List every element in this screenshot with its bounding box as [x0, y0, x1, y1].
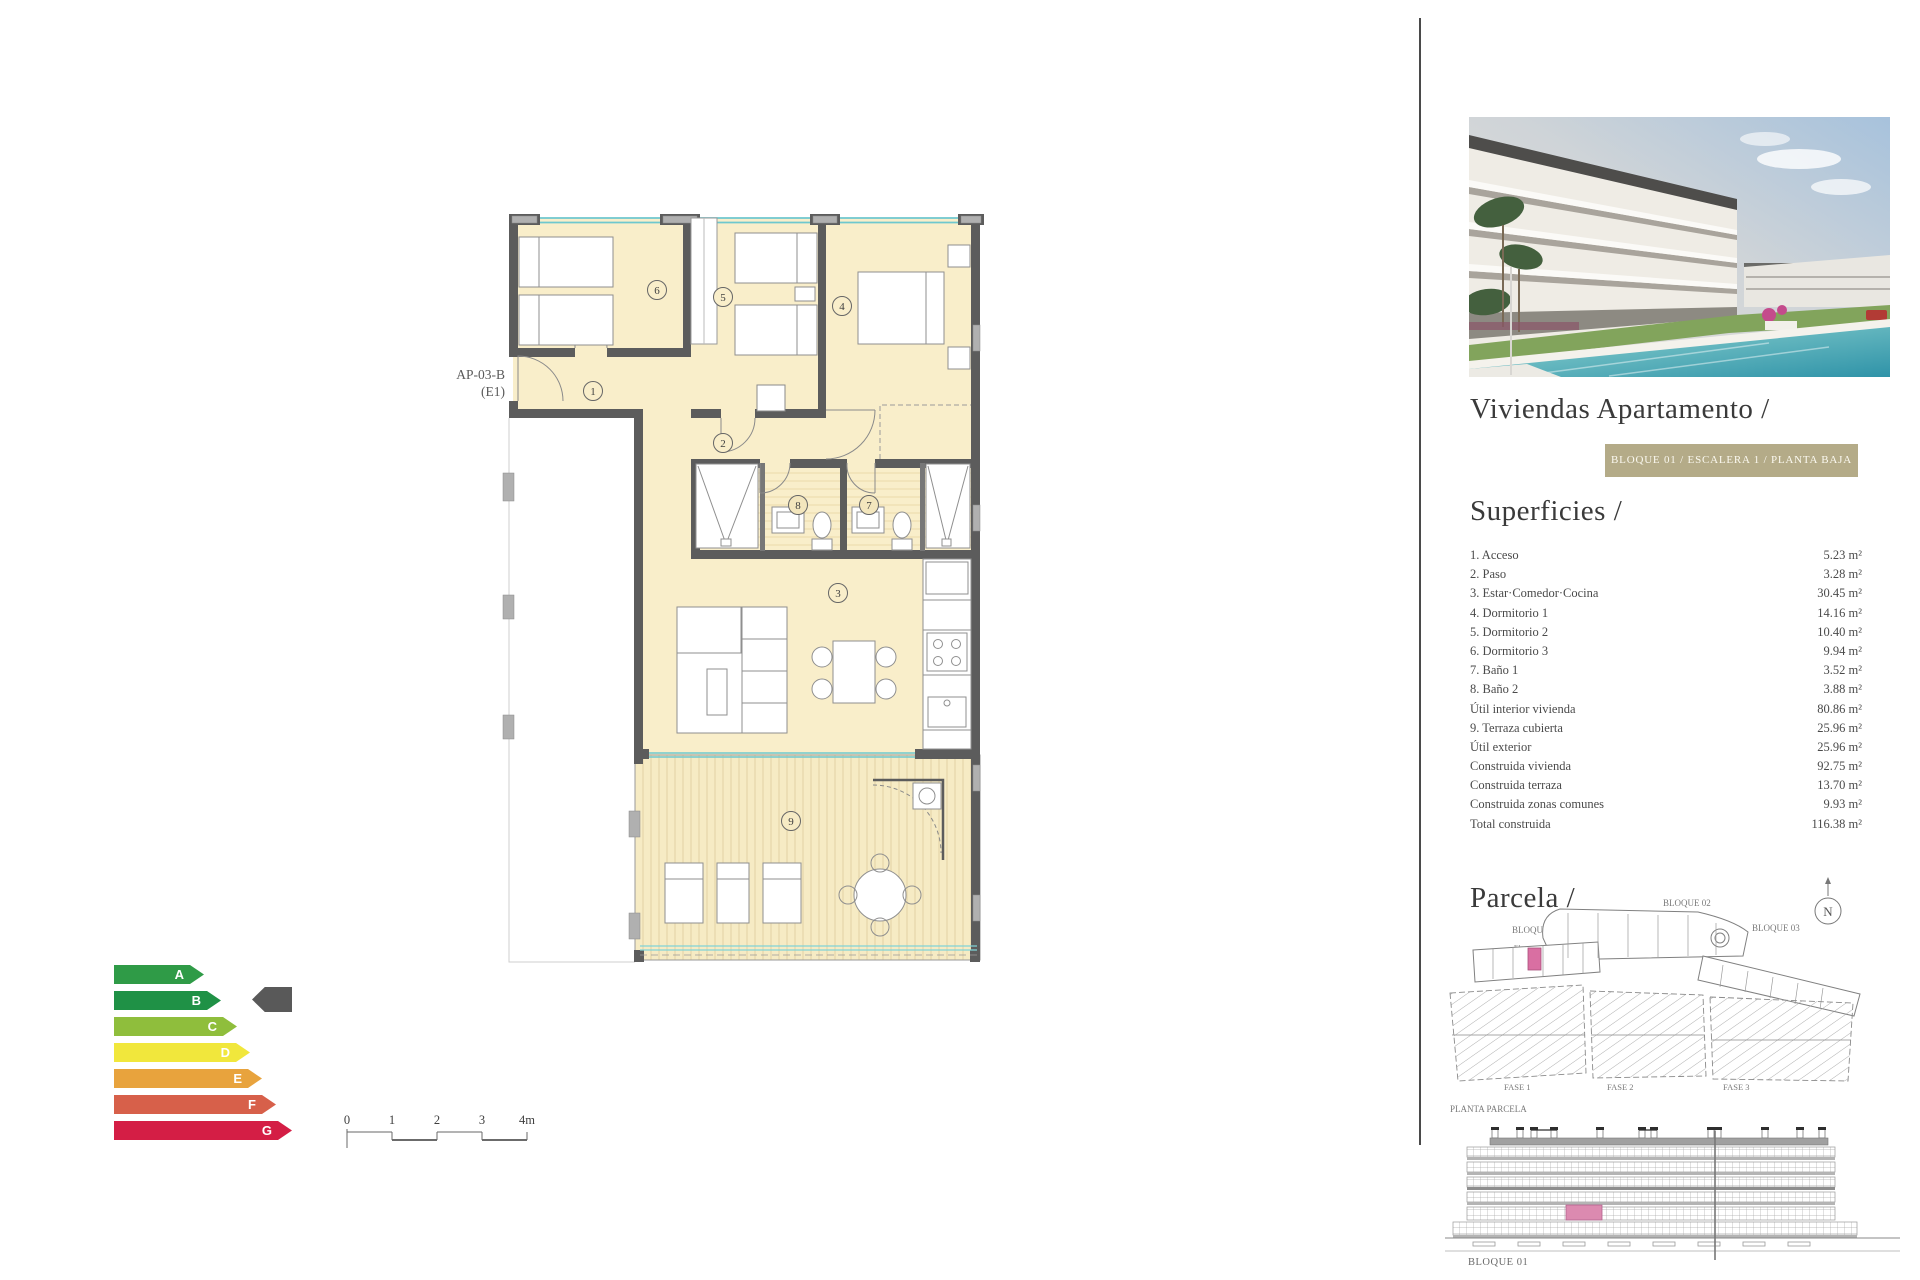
table-row: 7. Baño 13.52 m²: [1470, 661, 1862, 680]
energy-bar-c: C: [114, 1017, 237, 1036]
svg-text:1: 1: [590, 386, 596, 398]
svg-text:3: 3: [479, 1113, 485, 1127]
svg-text:2: 2: [720, 438, 726, 450]
svg-text:0: 0: [344, 1113, 350, 1127]
energy-bar-d: D: [114, 1043, 250, 1062]
exterior-outline: [509, 418, 635, 962]
elevation-drawing: BLOQUE 01: [1445, 1125, 1920, 1275]
table-row: 5. Dormitorio 210.40 m²: [1470, 623, 1862, 642]
svg-text:2: 2: [434, 1113, 440, 1127]
svg-text:N: N: [1823, 904, 1833, 919]
table-row: 9. Terraza cubierta25.96 m²: [1470, 719, 1862, 738]
svg-text:3: 3: [835, 588, 841, 600]
table-row: 1. Acceso5.23 m²: [1470, 546, 1862, 565]
svg-text:4m: 4m: [519, 1113, 535, 1127]
roof-chimneys: [1491, 1127, 1826, 1138]
north-compass-icon: N: [1815, 877, 1841, 924]
site-plan: BLOQUE 02 BLOQUE 01 BLOQUE 03 E1 E2 E3 F…: [1448, 875, 1918, 1120]
table-row: 8. Baño 23.88 m²: [1470, 680, 1862, 699]
table-row: Construida zonas comunes9.93 m²: [1470, 795, 1862, 814]
svg-text:9: 9: [788, 816, 794, 828]
unit-label-stair: (E1): [395, 383, 505, 400]
vertical-divider: [1419, 18, 1421, 1145]
table-row: Útil exterior25.96 m²: [1470, 738, 1862, 757]
unit-label-code: AP-03-B: [395, 366, 505, 383]
building-photo: [1469, 117, 1890, 377]
svg-text:6: 6: [654, 285, 660, 297]
energy-bar-b: B: [114, 991, 221, 1010]
superficies-table: 1. Acceso5.23 m² 2. Paso3.28 m² 3. Estar…: [1470, 546, 1862, 834]
block-stair-floor-badge: BLOQUE 01 / ESCALERA 1 / PLANTA BAJA: [1605, 444, 1858, 477]
roof-slab: [1490, 1138, 1828, 1145]
table-row: 6. Dormitorio 39.94 m²: [1470, 642, 1862, 661]
table-row: 3. Estar·Comedor·Cocina30.45 m²: [1470, 584, 1862, 603]
facade-floors: [1453, 1147, 1857, 1238]
floor-plan: 1 2 3 4 5 6 7 8 9: [495, 205, 995, 985]
unit-label: AP-03-B (E1): [395, 366, 505, 400]
table-row: Construida terraza13.70 m²: [1470, 776, 1862, 795]
table-row: 4. Dormitorio 114.16 m²: [1470, 604, 1862, 623]
energy-bar-f: F: [114, 1095, 276, 1114]
table-row: Total construida116.38 m²: [1470, 815, 1862, 834]
elevation-caption: BLOQUE 01: [1468, 1257, 1528, 1268]
highlighted-unit-elevation: [1566, 1205, 1602, 1220]
table-row: 2. Paso3.28 m²: [1470, 565, 1862, 584]
bloque-03-label: BLOQUE 03: [1752, 923, 1800, 933]
brochure-page: { "floor_plan": { "unit_label_line1": "A…: [0, 0, 1920, 1280]
energy-indicator-arrow: [252, 987, 292, 1012]
fase-2-label: FASE 2: [1607, 1082, 1634, 1092]
fase-1-label: FASE 1: [1504, 1082, 1531, 1092]
scale-bar: 0 1 2 3 4m: [338, 1108, 548, 1153]
svg-text:5: 5: [720, 292, 726, 304]
svg-text:8: 8: [795, 500, 801, 512]
energy-bar-e: E: [114, 1069, 262, 1088]
fase-3-label: FASE 3: [1723, 1082, 1750, 1092]
svg-text:4: 4: [839, 301, 845, 313]
svg-text:7: 7: [866, 500, 872, 512]
energy-bar-g: G: [114, 1121, 292, 1140]
page-title: Viviendas Apartamento /: [1470, 393, 1770, 426]
svg-text:1: 1: [389, 1113, 395, 1127]
table-row: Construida vivienda92.75 m²: [1470, 757, 1862, 776]
energy-bar-a: A: [114, 965, 204, 984]
superficies-heading: Superficies /: [1470, 495, 1622, 528]
table-row: Útil interior vivienda80.86 m²: [1470, 700, 1862, 719]
bloque-02-label: BLOQUE 02: [1663, 898, 1711, 908]
highlighted-unit: [1528, 948, 1541, 970]
planta-parcela-caption: PLANTA PARCELA: [1450, 1104, 1527, 1114]
